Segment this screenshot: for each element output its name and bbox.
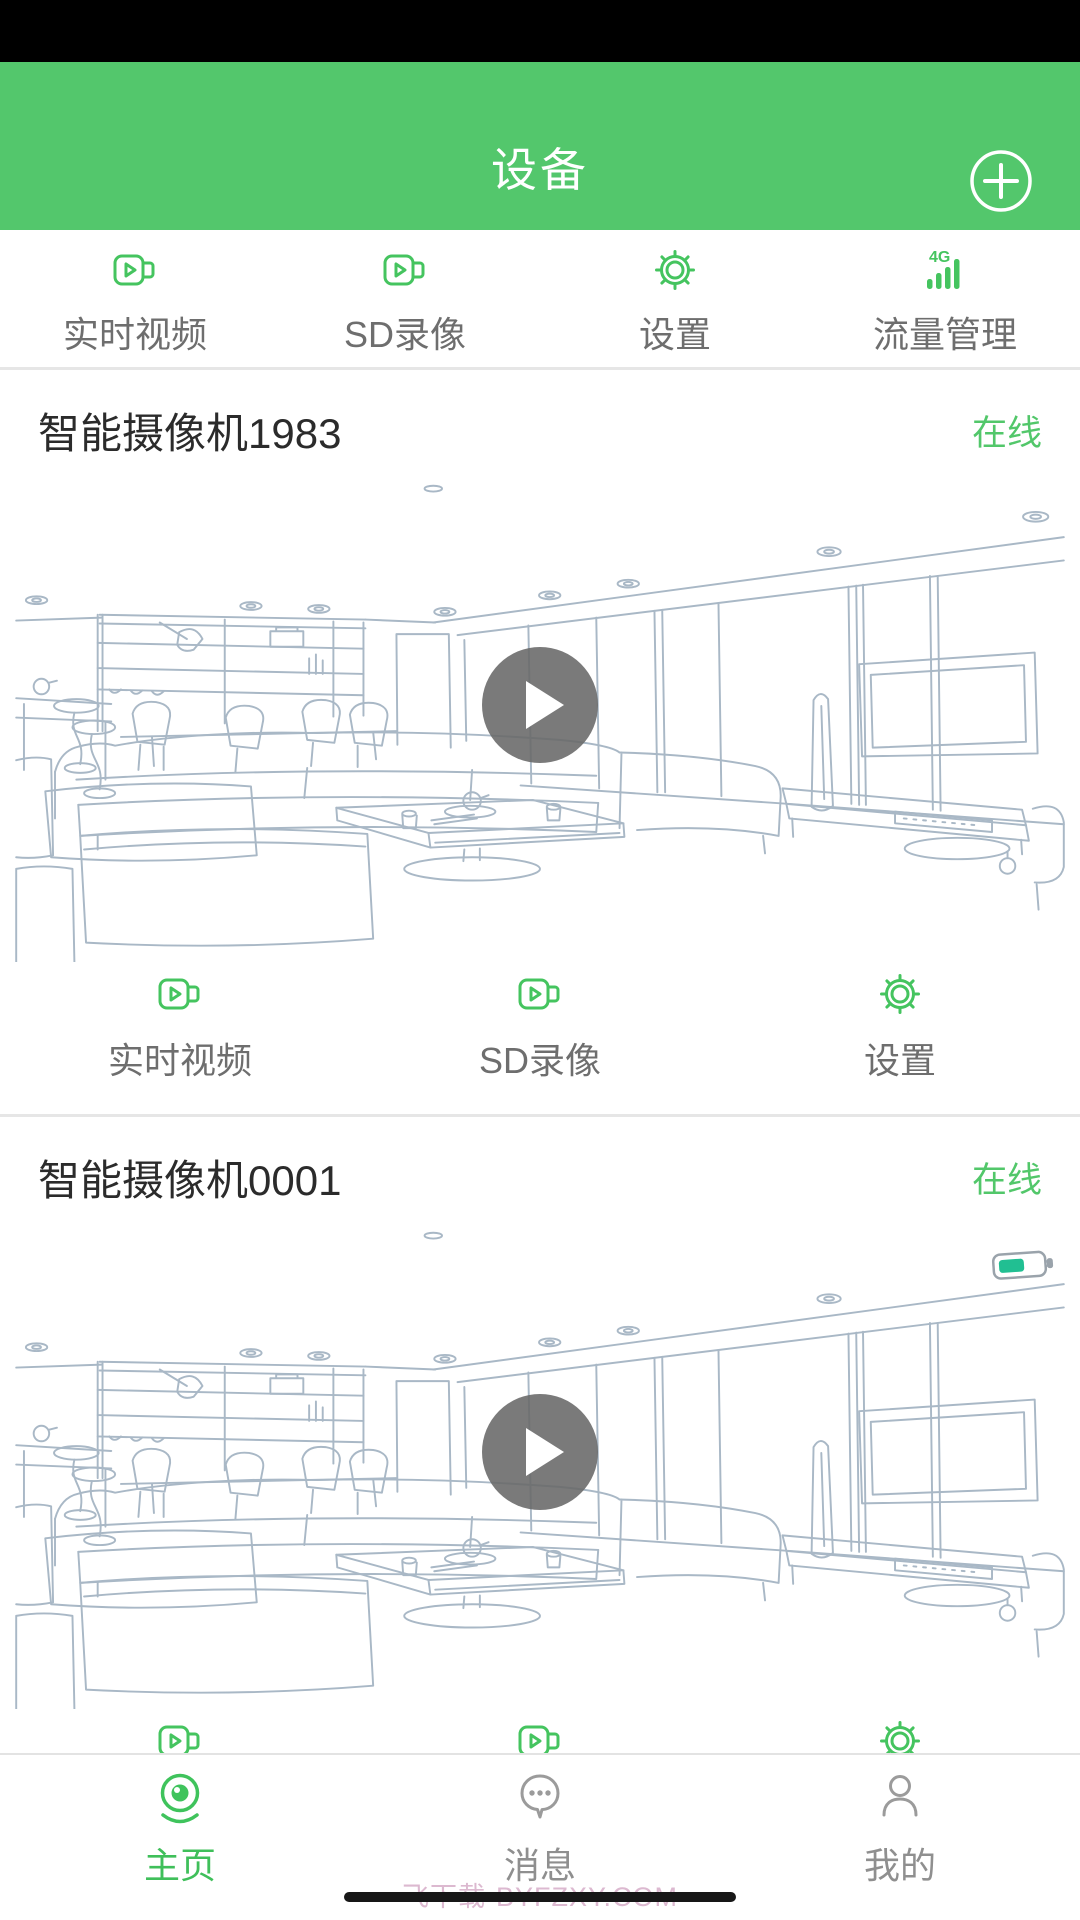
camera-status-badge: 在线 — [972, 405, 1042, 456]
camera-action-label: 设置 — [864, 1032, 936, 1084]
play-button[interactable] — [482, 1394, 598, 1510]
message-bubble-icon — [509, 1769, 571, 1829]
camera-card-2: 智能摄像机0001 在线 — [0, 1117, 1080, 1861]
quick-action-label: 设置 — [639, 306, 711, 358]
app-header: 设备 — [0, 62, 1080, 230]
camera-action-settings[interactable]: 设置 — [720, 968, 1080, 1084]
gear-icon — [653, 244, 697, 296]
camera-name: 智能摄像机1983 — [38, 400, 341, 461]
app-screen: 设备 实时视频 — [0, 0, 1080, 1920]
camera-card-header: 智能摄像机1983 在线 — [0, 370, 1080, 477]
plus-circle-icon — [968, 148, 1034, 214]
video-camera-icon — [157, 968, 203, 1020]
quick-action-label: 流量管理 — [873, 306, 1017, 358]
quick-action-live-video[interactable]: 实时视频 — [0, 244, 270, 367]
quick-action-label: SD录像 — [344, 306, 466, 358]
camera-card-header: 智能摄像机0001 在线 — [0, 1117, 1080, 1224]
quick-action-data-plan[interactable]: 4G 流量管理 — [810, 244, 1080, 367]
status-bar — [0, 0, 1080, 62]
camera-action-label: SD录像 — [479, 1032, 601, 1084]
webcam-icon — [149, 1769, 211, 1829]
camera-preview[interactable] — [0, 477, 1080, 962]
quick-action-sd-record[interactable]: SD录像 — [270, 244, 540, 367]
camera-status-badge: 在线 — [972, 1152, 1042, 1203]
quick-action-settings[interactable]: 设置 — [540, 244, 810, 367]
camera-name: 智能摄像机0001 — [38, 1147, 341, 1208]
quick-action-bar: 实时视频 SD录像 设置 — [0, 230, 1080, 367]
add-device-button[interactable] — [968, 148, 1034, 214]
video-camera-icon — [382, 244, 428, 296]
camera-preview[interactable] — [0, 1224, 1080, 1709]
quick-action-label: 实时视频 — [63, 306, 207, 358]
play-icon — [526, 1428, 564, 1476]
4g-signal-icon: 4G — [922, 244, 968, 296]
video-camera-icon — [517, 968, 563, 1020]
camera-action-label: 实时视频 — [108, 1032, 252, 1084]
battery-icon — [991, 1248, 1055, 1282]
video-camera-icon — [112, 244, 158, 296]
page-title: 设备 — [491, 134, 589, 230]
play-icon — [526, 681, 564, 729]
person-icon — [869, 1769, 931, 1829]
play-button[interactable] — [482, 647, 598, 763]
svg-text:4G: 4G — [929, 249, 950, 266]
camera-action-live-video[interactable]: 实时视频 — [0, 968, 360, 1084]
home-indicator-bar[interactable] — [344, 1892, 736, 1902]
camera-action-sd-record[interactable]: SD录像 — [360, 968, 720, 1084]
camera-card-1: 智能摄像机1983 在线 — [0, 370, 1080, 1114]
camera-actions-bar: 实时视频 SD录像 — [0, 962, 1080, 1114]
gear-icon — [878, 968, 922, 1020]
